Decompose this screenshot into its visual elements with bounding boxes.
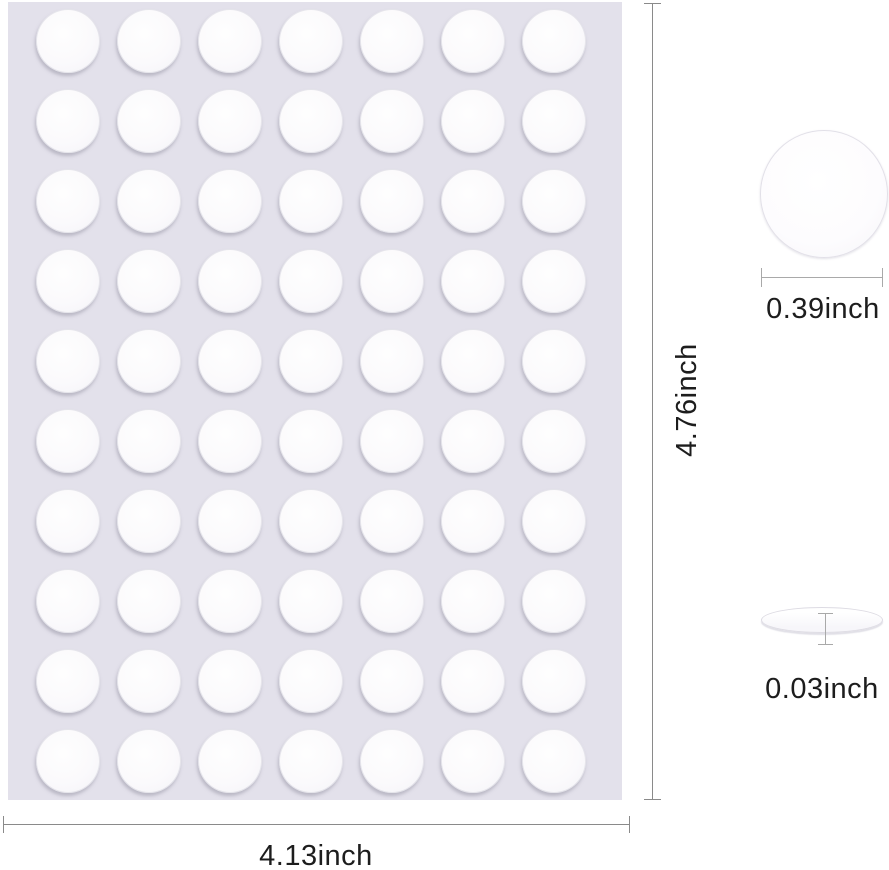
adhesive-dot <box>117 89 181 153</box>
adhesive-dot <box>522 569 586 633</box>
adhesive-dot <box>36 409 100 473</box>
adhesive-dot <box>117 249 181 313</box>
adhesive-dot <box>198 169 262 233</box>
adhesive-dot <box>36 329 100 393</box>
adhesive-dot <box>36 249 100 313</box>
adhesive-dot <box>198 89 262 153</box>
adhesive-dot <box>279 489 343 553</box>
adhesive-dot <box>522 89 586 153</box>
adhesive-dot <box>279 89 343 153</box>
adhesive-dot <box>117 729 181 793</box>
adhesive-dot <box>117 489 181 553</box>
adhesive-dot <box>36 169 100 233</box>
adhesive-dot <box>360 329 424 393</box>
adhesive-dot <box>117 649 181 713</box>
adhesive-dot <box>441 729 505 793</box>
adhesive-dot <box>522 649 586 713</box>
adhesive-dot <box>36 489 100 553</box>
adhesive-dot <box>522 729 586 793</box>
adhesive-dot <box>36 9 100 73</box>
adhesive-dot <box>360 249 424 313</box>
thickness-dimension-bottom-tick <box>818 644 833 645</box>
adhesive-dot <box>360 89 424 153</box>
adhesive-dot <box>522 329 586 393</box>
adhesive-dot <box>279 329 343 393</box>
diameter-dimension-line <box>761 277 883 278</box>
adhesive-dot <box>279 649 343 713</box>
height-dimension-line <box>652 3 653 800</box>
diameter-dimension-right-tick <box>882 268 883 287</box>
adhesive-dot <box>441 169 505 233</box>
adhesive-dot <box>117 169 181 233</box>
adhesive-dot <box>36 649 100 713</box>
adhesive-dot <box>279 9 343 73</box>
adhesive-dot <box>279 169 343 233</box>
adhesive-dot <box>117 409 181 473</box>
adhesive-dot <box>441 329 505 393</box>
height-dimension-top-tick <box>644 3 661 4</box>
product-dimension-diagram: 4.76inch 4.13inch 0.39inch 0.03inch <box>0 0 889 870</box>
adhesive-dot <box>522 489 586 553</box>
adhesive-dot <box>441 649 505 713</box>
adhesive-dot <box>117 569 181 633</box>
adhesive-dot <box>198 329 262 393</box>
adhesive-dot <box>198 569 262 633</box>
adhesive-dot <box>279 569 343 633</box>
adhesive-dot <box>36 729 100 793</box>
width-dimension-right-tick <box>629 816 630 833</box>
height-dimension-bottom-tick <box>644 799 661 800</box>
adhesive-dot <box>36 569 100 633</box>
width-dimension-label: 4.13inch <box>246 841 386 870</box>
adhesive-dot <box>360 9 424 73</box>
adhesive-dot <box>360 729 424 793</box>
adhesive-dot <box>522 169 586 233</box>
adhesive-dot <box>441 89 505 153</box>
adhesive-dot <box>279 729 343 793</box>
adhesive-dot <box>36 89 100 153</box>
adhesive-dot <box>441 9 505 73</box>
adhesive-dot <box>441 569 505 633</box>
adhesive-dot <box>198 649 262 713</box>
width-dimension-line <box>3 824 630 825</box>
adhesive-dot <box>117 329 181 393</box>
diameter-dimension-label: 0.39inch <box>753 294 889 326</box>
adhesive-dot <box>522 9 586 73</box>
adhesive-dot <box>279 249 343 313</box>
width-dimension-left-tick <box>3 816 4 833</box>
adhesive-dot <box>441 489 505 553</box>
adhesive-dot <box>522 409 586 473</box>
single-dot-side-view <box>761 607 883 633</box>
adhesive-dot <box>522 249 586 313</box>
thickness-dimension-label: 0.03inch <box>752 674 889 706</box>
adhesive-dot <box>117 9 181 73</box>
adhesive-dot <box>360 409 424 473</box>
height-dimension-label: 4.76inch <box>672 330 706 470</box>
adhesive-dot <box>441 409 505 473</box>
adhesive-dot-sheet <box>8 2 622 800</box>
single-dot-front-view <box>760 130 888 258</box>
adhesive-dot <box>360 169 424 233</box>
adhesive-dot <box>360 489 424 553</box>
adhesive-dot <box>198 409 262 473</box>
adhesive-dot <box>360 649 424 713</box>
thickness-dimension-top-tick <box>818 613 833 614</box>
adhesive-dot <box>198 249 262 313</box>
diameter-dimension-left-tick <box>761 268 762 287</box>
adhesive-dot <box>198 729 262 793</box>
adhesive-dot <box>198 489 262 553</box>
thickness-dimension-line <box>825 613 826 645</box>
adhesive-dot <box>360 569 424 633</box>
dot-grid <box>36 9 586 793</box>
adhesive-dot <box>198 9 262 73</box>
adhesive-dot <box>441 249 505 313</box>
adhesive-dot <box>279 409 343 473</box>
